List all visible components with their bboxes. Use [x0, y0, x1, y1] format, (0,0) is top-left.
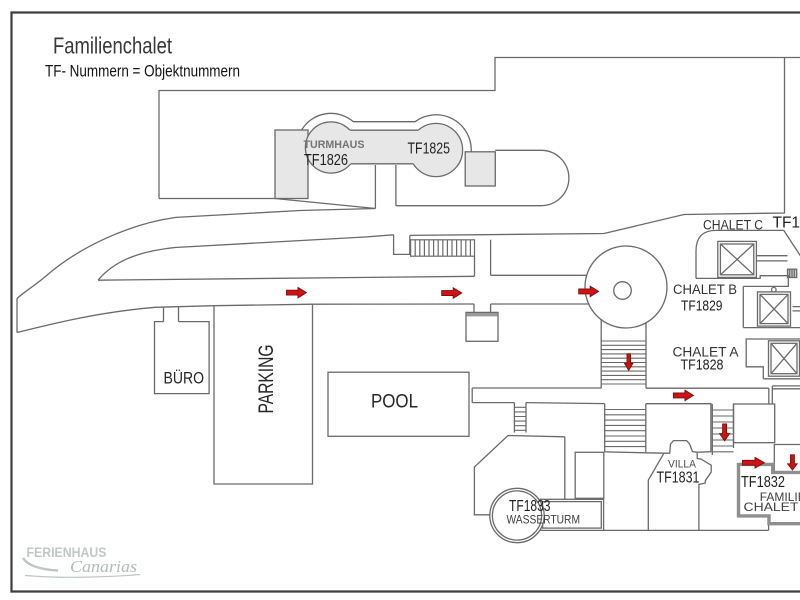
svg-text:TF1831: TF1831 [657, 470, 700, 487]
svg-text:TF1828: TF1828 [681, 357, 724, 374]
svg-text:TF- Nummern = Objektnummern: TF- Nummern = Objektnummern [45, 62, 240, 81]
svg-text:TURMHAUS: TURMHAUS [304, 139, 365, 151]
svg-text:CHALET C: CHALET C [703, 218, 763, 233]
svg-text:BÜRO: BÜRO [164, 370, 205, 388]
svg-text:TF1832: TF1832 [741, 474, 785, 491]
svg-text:TF1825: TF1825 [408, 141, 451, 158]
svg-text:CHALET: CHALET [744, 500, 800, 514]
svg-text:CHALET B: CHALET B [673, 282, 737, 297]
svg-text:TF1830: TF1830 [773, 215, 800, 232]
svg-text:Familienchalet: Familienchalet [53, 33, 172, 59]
svg-text:WASSERTURM: WASSERTURM [507, 513, 581, 527]
svg-text:POOL: POOL [371, 392, 418, 413]
svg-text:TF1826: TF1826 [304, 152, 348, 169]
svg-text:TF1829: TF1829 [681, 298, 723, 315]
svg-text:PARKING: PARKING [255, 345, 278, 414]
svg-text:Canarias: Canarias [70, 557, 137, 576]
